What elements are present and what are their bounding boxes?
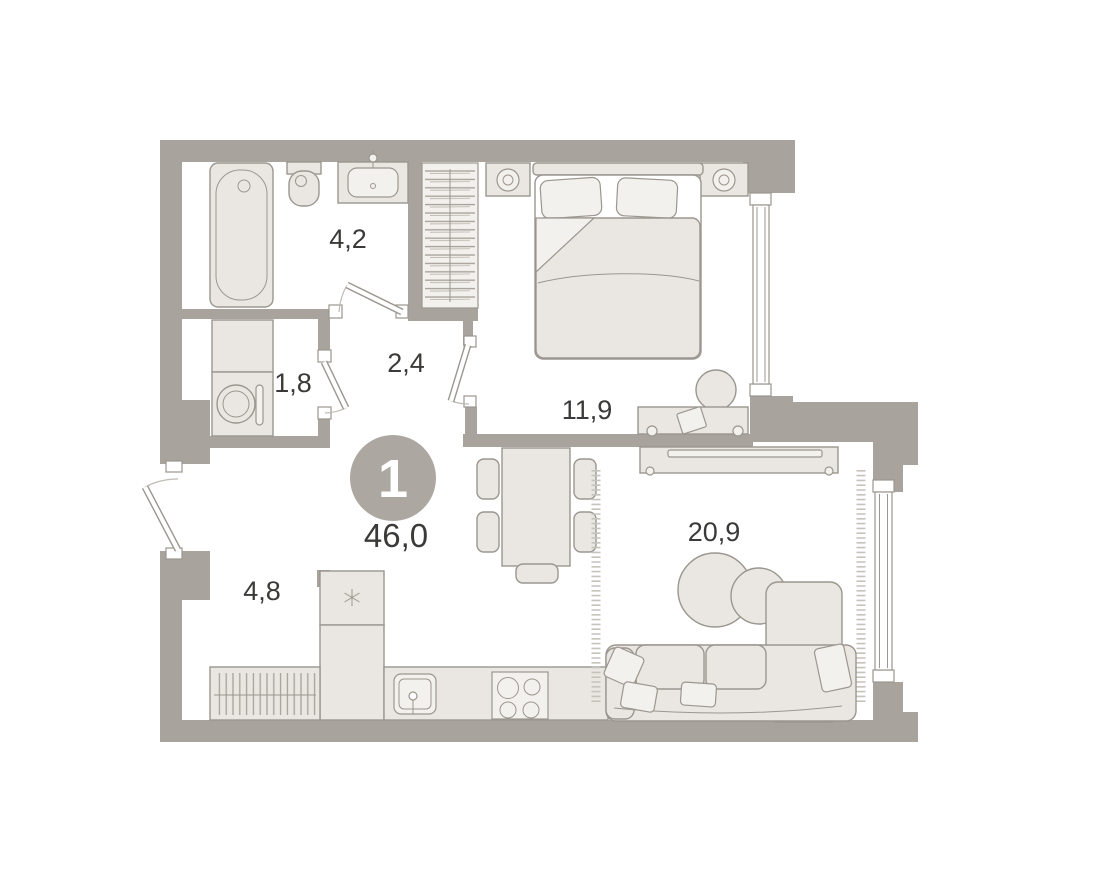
- wall-segment: [465, 407, 477, 436]
- tv: [668, 450, 822, 457]
- window-jamb: [750, 384, 771, 396]
- wall-segment: [160, 140, 182, 402]
- toilet: [287, 162, 321, 206]
- table-lamp: [497, 169, 519, 191]
- table-lamp: [713, 169, 735, 191]
- wall-segment: [743, 140, 795, 193]
- door-jamb: [464, 396, 476, 407]
- dining-table: [502, 448, 570, 566]
- wall-segment: [318, 318, 330, 351]
- washer-detail: [256, 385, 263, 425]
- window-jamb: [750, 193, 771, 205]
- washing-machine: [212, 372, 273, 436]
- wall-segment: [463, 434, 753, 447]
- wall-segment: [408, 308, 478, 321]
- window-frame: [753, 205, 769, 384]
- nightstand-right: [700, 163, 748, 196]
- bathtub-body: [210, 163, 273, 307]
- sofa-cushion: [680, 682, 717, 707]
- cabinet-body: [212, 320, 273, 372]
- door-jamb: [166, 461, 182, 472]
- wall-segment: [160, 140, 765, 162]
- bed-pillow: [616, 177, 678, 218]
- dining-chair: [477, 459, 499, 499]
- nightstand-left: [486, 163, 530, 196]
- bed-headboard: [533, 163, 703, 175]
- kitchen-counter: [384, 667, 608, 720]
- unit-badge: 1 46,0: [350, 435, 436, 554]
- bedroom-window: [750, 193, 771, 396]
- wall-segment: [750, 402, 918, 442]
- kitchen-cabinet-column: [320, 625, 384, 720]
- kitchen-faucet: [409, 692, 417, 700]
- unit-badge-rooms: 1: [378, 449, 408, 509]
- tv-console: [640, 447, 838, 475]
- cooktop: [492, 672, 548, 719]
- window-jamb: [873, 480, 894, 492]
- wall-segment: [181, 309, 330, 319]
- room-label-hallway: 2,4: [387, 348, 425, 378]
- wall-segment: [160, 436, 330, 448]
- wardrobe-hangers: [216, 672, 316, 716]
- chair-seat: [696, 370, 736, 410]
- cabinet-body: [320, 625, 384, 720]
- sink-basin: [348, 168, 398, 197]
- sofa-back-cushion: [706, 645, 766, 689]
- washer-body: [212, 372, 273, 436]
- double-bed: [533, 163, 703, 359]
- window-frame: [875, 492, 892, 670]
- living-room-window: [873, 480, 894, 682]
- sofa-pillow: [620, 681, 658, 713]
- desk-foot: [647, 426, 657, 436]
- sink-faucet-head: [369, 154, 377, 162]
- room-label-bathroom: 4,2: [329, 224, 367, 254]
- bathtub: [210, 163, 273, 307]
- desk: [638, 406, 748, 436]
- wall-segment: [160, 720, 918, 742]
- console-foot: [825, 467, 833, 475]
- wardrobe-closet: [422, 163, 478, 308]
- bed-pillow: [540, 177, 603, 219]
- wall-segment: [318, 419, 330, 438]
- room-label-utility: 1,8: [274, 368, 312, 398]
- dining-bench: [516, 564, 558, 583]
- wall-segment: [873, 712, 918, 722]
- dining-chair: [477, 512, 499, 552]
- door-jamb: [318, 350, 331, 362]
- window-jamb: [873, 670, 894, 682]
- dining-chair: [574, 459, 596, 499]
- wall-segment: [160, 551, 182, 742]
- total-area-label: 46,0: [364, 517, 428, 554]
- wall-segment: [408, 162, 422, 308]
- room-label-bedroom: 11,9: [562, 395, 613, 425]
- desk-foot: [733, 426, 743, 436]
- utility-cabinet: [212, 320, 273, 372]
- wall-segment: [873, 442, 918, 465]
- desk-chair: [696, 370, 736, 410]
- wall-segment: [160, 400, 210, 464]
- wall-segment: [873, 682, 903, 712]
- floor-plan-canvas: 4,2 1,8 2,4 11,9 4,8 20,9 1 46,0: [0, 0, 1111, 880]
- room-label-entry: 4,8: [243, 576, 281, 606]
- fridge: [320, 571, 384, 625]
- console-foot: [646, 467, 654, 475]
- floor-plan: 4,2 1,8 2,4 11,9 4,8 20,9 1 46,0: [0, 0, 1111, 880]
- hallway-wardrobe: [210, 667, 320, 720]
- room-label-living-kitchen: 20,9: [688, 517, 741, 547]
